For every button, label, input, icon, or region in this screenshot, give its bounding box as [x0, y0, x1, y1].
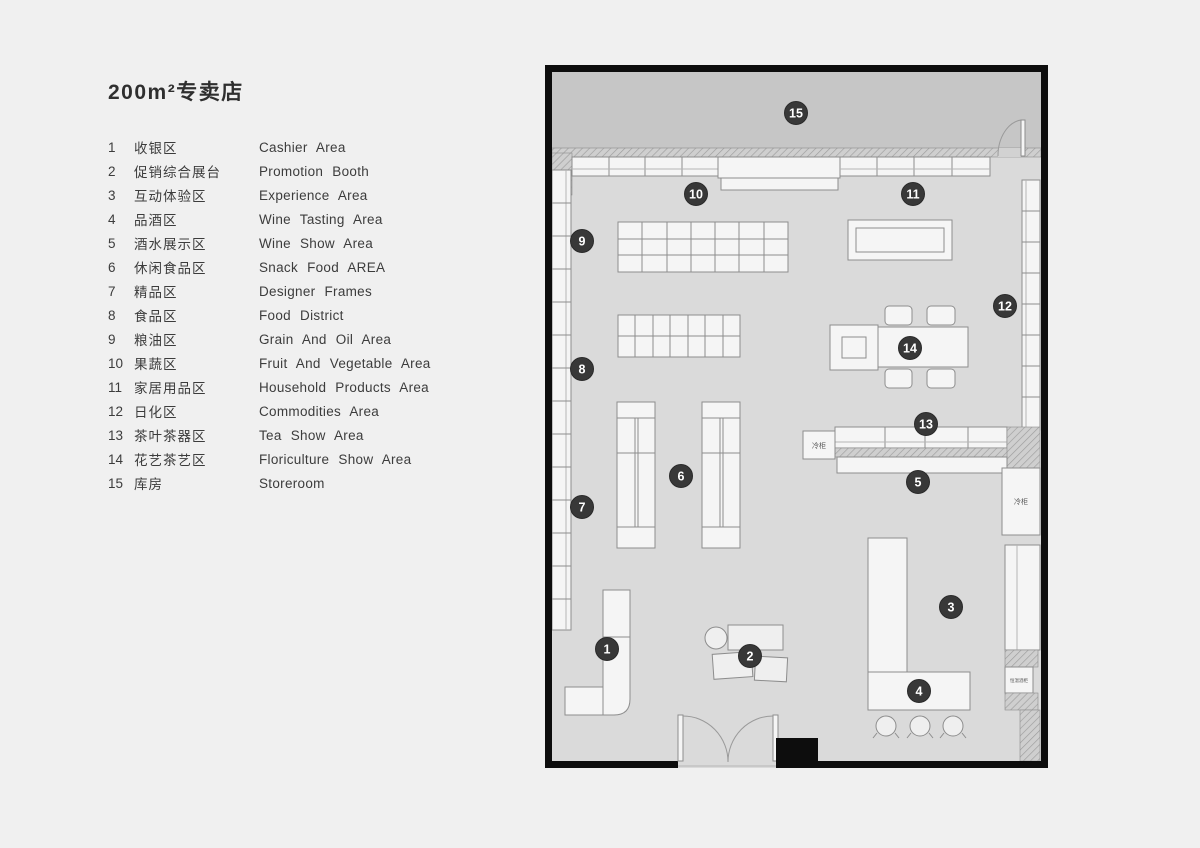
svg-text:4: 4	[916, 684, 923, 698]
stool	[876, 716, 896, 736]
svg-text:10: 10	[689, 187, 703, 201]
legend-number: 14	[108, 452, 134, 467]
svg-text:13: 13	[919, 417, 933, 431]
area-marker-13: 13	[915, 413, 938, 436]
bar-stools	[873, 716, 966, 738]
legend: 1收银区Cashier Area 2促销综合展台Promotion Booth …	[108, 135, 431, 495]
legend-en-label: Floriculture Show Area	[259, 452, 411, 467]
area-marker-12: 12	[994, 295, 1017, 318]
legend-zh-label: 收银区	[134, 137, 259, 157]
page-title: 200m²专卖店	[108, 76, 244, 106]
legend-row-10: 10果蔬区Fruit And Vegetable Area	[108, 351, 431, 375]
legend-number: 1	[108, 140, 134, 155]
svg-text:5: 5	[915, 475, 922, 489]
legend-zh-label: 食品区	[134, 305, 259, 325]
door-leaf	[678, 715, 683, 761]
legend-row-9: 9粮油区Grain And Oil Area	[108, 327, 431, 351]
area-marker-15: 15	[785, 102, 808, 125]
legend-row-2: 2促销综合展台Promotion Booth	[108, 159, 431, 183]
legend-number: 7	[108, 284, 134, 299]
legend-number: 10	[108, 356, 134, 371]
legend-en-label: Storeroom	[259, 476, 325, 491]
legend-zh-label: 粮油区	[134, 329, 259, 349]
table	[878, 327, 968, 367]
experience-counter	[868, 538, 907, 673]
svg-text:1: 1	[604, 642, 611, 656]
cold-cabinet-right: 冷柜	[1002, 468, 1040, 535]
legend-number: 15	[108, 476, 134, 491]
legend-en-label: Wine Show Area	[259, 236, 373, 251]
legend-zh-label: 花艺茶艺区	[134, 449, 259, 469]
chair	[885, 369, 912, 388]
chair	[927, 306, 955, 325]
gondola-shelf-2	[702, 402, 740, 548]
legend-en-label: Fruit And Vegetable Area	[259, 356, 431, 371]
legend-row-6: 6休闲食品区Snack Food AREA	[108, 255, 431, 279]
legend-zh-label: 酒水展示区	[134, 233, 259, 253]
svg-text:2: 2	[747, 649, 754, 663]
legend-row-15: 15库房Storeroom	[108, 471, 431, 495]
legend-en-label: Snack Food AREA	[259, 260, 385, 275]
legend-en-label: Designer Frames	[259, 284, 372, 299]
area-marker-7: 7	[571, 496, 594, 519]
legend-zh-label: 精品区	[134, 281, 259, 301]
legend-zh-label: 互动体验区	[134, 185, 259, 205]
legend-row-7: 7精品区Designer Frames	[108, 279, 431, 303]
legend-row-3: 3互动体验区Experience Area	[108, 183, 431, 207]
legend-en-label: Wine Tasting Area	[259, 212, 383, 227]
top-center-counter	[718, 157, 840, 178]
area-marker-6: 6	[670, 465, 693, 488]
household-display	[848, 220, 952, 260]
legend-row-13: 13茶叶茶器区Tea Show Area	[108, 423, 431, 447]
right-wall-shelves	[1022, 180, 1040, 430]
legend-number: 4	[108, 212, 134, 227]
legend-number: 6	[108, 260, 134, 275]
legend-zh-label: 果蔬区	[134, 353, 259, 373]
legend-en-label: Household Products Area	[259, 380, 429, 395]
cold-cabinet-left: 冷柜	[803, 431, 835, 459]
legend-row-1: 1收银区Cashier Area	[108, 135, 431, 159]
svg-text:8: 8	[579, 362, 586, 376]
stool	[943, 716, 963, 736]
legend-row-11: 11家居用品区Household Products Area	[108, 375, 431, 399]
svg-text:6: 6	[678, 469, 685, 483]
cold-cabinet-label: 冷柜	[1014, 497, 1028, 506]
legend-en-label: Food District	[259, 308, 344, 323]
legend-number: 9	[108, 332, 134, 347]
area-marker-11: 11	[902, 183, 925, 206]
legend-zh-label: 库房	[134, 473, 259, 493]
svg-text:7: 7	[579, 500, 586, 514]
legend-number: 11	[108, 380, 134, 395]
legend-row-8: 8食品区Food District	[108, 303, 431, 327]
area-marker-3: 3	[940, 596, 963, 619]
legend-row-12: 12日化区Commodities Area	[108, 399, 431, 423]
floor-plan: 冷柜 冷柜 恒温酒柜	[545, 65, 1048, 768]
column	[776, 738, 818, 768]
area-marker-8: 8	[571, 358, 594, 381]
svg-text:11: 11	[906, 187, 919, 201]
stool	[910, 716, 930, 736]
legend-number: 12	[108, 404, 134, 419]
left-wall-shelves	[552, 170, 571, 630]
area-marker-2: 2	[739, 645, 762, 668]
svg-text:3: 3	[948, 600, 955, 614]
area-marker-4: 4	[908, 680, 931, 703]
legend-number: 3	[108, 188, 134, 203]
legend-zh-label: 休闲食品区	[134, 257, 259, 277]
legend-zh-label: 促销综合展台	[134, 161, 259, 181]
legend-number: 5	[108, 236, 134, 251]
svg-text:15: 15	[789, 106, 803, 120]
page: { "title": "200m²专卖店", "legend": { "item…	[0, 0, 1200, 848]
legend-number: 8	[108, 308, 134, 323]
chair	[885, 306, 912, 325]
legend-zh-label: 茶叶茶器区	[134, 425, 259, 445]
area-marker-10: 10	[685, 183, 708, 206]
wine-cabinet-label: 恒温酒柜	[1010, 677, 1028, 684]
legend-en-label: Tea Show Area	[259, 428, 364, 443]
area-marker-5: 5	[907, 471, 930, 494]
legend-row-14: 14花艺茶艺区Floriculture Show Area	[108, 447, 431, 471]
legend-en-label: Commodities Area	[259, 404, 379, 419]
legend-number: 2	[108, 164, 134, 179]
grid-shelf-b	[618, 315, 740, 357]
cold-cabinet-label: 冷柜	[812, 441, 826, 450]
legend-zh-label: 日化区	[134, 401, 259, 421]
legend-en-label: Experience Area	[259, 188, 368, 203]
legend-number: 13	[108, 428, 134, 443]
legend-zh-label: 家居用品区	[134, 377, 259, 397]
svg-text:14: 14	[903, 341, 917, 355]
area-marker-14: 14	[899, 337, 922, 360]
svg-text:12: 12	[998, 299, 1012, 313]
legend-row-5: 5酒水展示区Wine Show Area	[108, 231, 431, 255]
gondola-shelf-1	[617, 402, 655, 548]
legend-zh-label: 品酒区	[134, 209, 259, 229]
legend-en-label: Grain And Oil Area	[259, 332, 391, 347]
legend-row-4: 4品酒区Wine Tasting Area	[108, 207, 431, 231]
grid-shelf-a	[618, 222, 788, 272]
legend-en-label: Cashier Area	[259, 140, 346, 155]
svg-text:9: 9	[579, 234, 586, 248]
wine-show-shelf	[837, 457, 1007, 473]
door-leaf	[1021, 120, 1025, 156]
area-marker-9: 9	[571, 230, 594, 253]
legend-en-label: Promotion Booth	[259, 164, 369, 179]
area-marker-1: 1	[596, 638, 619, 661]
chair	[927, 369, 955, 388]
